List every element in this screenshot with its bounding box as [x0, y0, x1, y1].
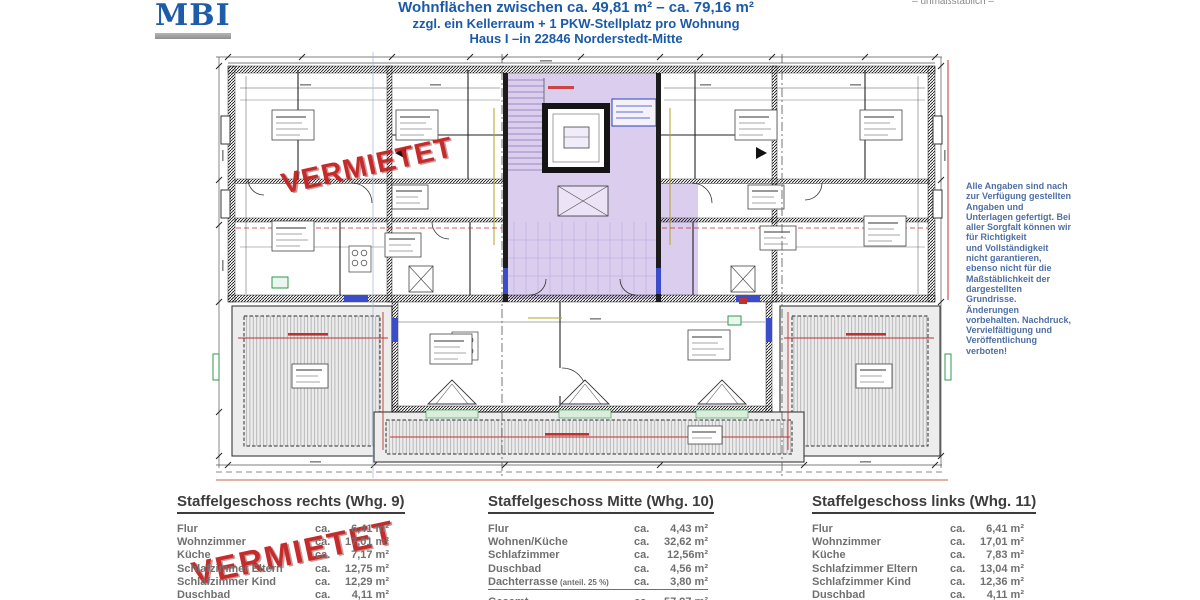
room-label: Küche: [177, 549, 315, 562]
table-row: Wohnzimmerca.17,01 m²: [812, 536, 1024, 549]
disclaimer-line: Alle Angaben sind nach: [966, 181, 1074, 191]
disclaimer-line: zur Verfügung gestellten: [966, 191, 1074, 201]
table-whg-11: Staffelgeschoss links (Whg. 11) Flurca.6…: [812, 493, 1024, 600]
room-area-value: 17,01 m²: [972, 536, 1024, 549]
room-label: Wohnzimmer: [812, 536, 950, 549]
room-area-value: 17,01 m²: [337, 536, 389, 549]
approx-prefix: ca.: [634, 536, 656, 549]
scale-note: – unmaßstäblich –: [878, 0, 1028, 7]
room-label: Schlafzimmer: [488, 549, 634, 562]
title-extras: zzgl. ein Kellerraum + 1 PKW-Stellplatz …: [326, 16, 826, 31]
room-label: Duschbad: [488, 563, 634, 576]
disclaimer-line: Maßstäblichkeit der: [966, 274, 1074, 284]
room-label: Küche: [812, 549, 950, 562]
table-row: Wohnzimmerca.17,01 m²: [177, 536, 389, 549]
mbi-logo: MBI: [155, 0, 231, 39]
table-row: Flurca.6,41 m²: [812, 523, 1024, 536]
approx-prefix: ca.: [634, 523, 656, 536]
approx-prefix: ca.: [950, 523, 972, 536]
disclaimer-line: Vervielfältigung und: [966, 325, 1074, 335]
room-label: Dachterrasse (anteil. 25 %): [488, 576, 634, 589]
title-area-range: Wohnflächen zwischen ca. 49,81 m² – ca. …: [326, 0, 826, 16]
room-area-value: 12,29 m²: [337, 576, 389, 589]
approx-prefix: ca.: [950, 589, 972, 600]
room-area-value: 12,75 m²: [337, 563, 389, 576]
table-rows-whg-10: Flurca.4,43 m²Wohnen/Kücheca.32,62 m²Sch…: [488, 523, 708, 600]
room-area-value: 12,56m²: [656, 549, 708, 562]
table-row: Schlafzimmer Elternca.12,75 m²: [177, 563, 389, 576]
approx-prefix: ca.: [315, 576, 337, 589]
table-row: Gesamtca.57,97 m²: [488, 596, 708, 600]
approx-prefix: ca.: [950, 563, 972, 576]
stove-icon-left: [349, 246, 371, 272]
approx-prefix: ca.: [315, 563, 337, 576]
plan-arrow-right: [756, 147, 767, 159]
table-row: Schlafzimmerca.12,56m²: [488, 549, 708, 562]
table-row: Duschbadca.4,11 m²: [812, 589, 1024, 600]
page-title: Wohnflächen zwischen ca. 49,81 m² – ca. …: [326, 0, 826, 46]
room-label: Flur: [812, 523, 950, 536]
room-label: Gesamt: [488, 596, 634, 600]
room-area-value: 7,83 m²: [972, 549, 1024, 562]
table-row: Flurca.6,41 m²: [177, 523, 389, 536]
room-area-value: 6,41 m²: [337, 523, 389, 536]
approx-prefix: ca.: [950, 549, 972, 562]
disclaimer-line: nicht garantieren,: [966, 253, 1074, 263]
room-area-value: 57,97 m²: [656, 596, 708, 600]
approx-prefix: ca.: [634, 549, 656, 562]
table-row: Kücheca.7,17 m²: [177, 549, 389, 562]
mbi-logo-bar: [155, 33, 231, 39]
disclaimer-line: dargestellten: [966, 284, 1074, 294]
room-label-note: (anteil. 25 %): [558, 578, 609, 587]
disclaimer-line: verboten!: [966, 346, 1074, 356]
core-info-box: [612, 99, 656, 126]
disclaimer-line: für Richtigkeit: [966, 232, 1074, 242]
approx-prefix: ca.: [315, 589, 337, 600]
mbi-logo-text: MBI: [155, 0, 231, 32]
disclaimer-line: und Vollständigkeit: [966, 243, 1074, 253]
approx-prefix: ca.: [950, 576, 972, 589]
room-label: Flur: [177, 523, 315, 536]
title-address: Haus I –in 22846 Norderstedt-Mitte: [326, 31, 826, 46]
floor-plan: [210, 50, 955, 490]
room-label: Flur: [488, 523, 634, 536]
table-row: Duschbadca.4,11 m²: [177, 589, 389, 600]
room-label: Duschbad: [812, 589, 950, 600]
table-title-whg-10: Staffelgeschoss Mitte (Whg. 10): [488, 493, 714, 514]
room-label: Schlafzimmer Kind: [177, 576, 315, 589]
approx-prefix: ca.: [315, 536, 337, 549]
core-cross-box: [558, 186, 608, 216]
room-area-value: 4,11 m²: [337, 589, 389, 600]
brochure-page: MBI Wohnflächen zwischen ca. 49,81 m² – …: [0, 0, 1200, 600]
disclaimer-line: Veröffentlichung: [966, 335, 1074, 345]
disclaimer-line: aller Sorgfalt können wir: [966, 222, 1074, 232]
table-row: Schlafzimmer Kindca.12,29 m²: [177, 576, 389, 589]
room-label: Wohnen/Küche: [488, 536, 634, 549]
room-label: Wohnzimmer: [177, 536, 315, 549]
table-whg-9: Staffelgeschoss rechts (Whg. 9) Flurca.6…: [177, 493, 389, 600]
elevator-shaft: [545, 106, 607, 170]
room-area-value: 13,04 m²: [972, 563, 1024, 576]
room-area-value: 6,41 m²: [972, 523, 1024, 536]
disclaimer-line: ebenso nicht für die: [966, 263, 1074, 273]
table-title-whg-11: Staffelgeschoss links (Whg. 11): [812, 493, 1036, 514]
disclaimer-line: Änderungen: [966, 305, 1074, 315]
disclaimer-text: Alle Angaben sind nachzur Verfügung gest…: [966, 181, 1074, 356]
room-area-value: 7,17 m²: [337, 549, 389, 562]
table-row: Schlafzimmer Elternca.13,04 m²: [812, 563, 1024, 576]
core-wall-right: [656, 73, 661, 302]
room-area-value: 4,43 m²: [656, 523, 708, 536]
dormer-windows: [426, 380, 748, 418]
room-label: Schlafzimmer Eltern: [812, 563, 950, 576]
table-row: Kücheca.7,83 m²: [812, 549, 1024, 562]
room-area-value: 4,11 m²: [972, 589, 1024, 600]
disclaimer-line: Unterlagen gefertigt. Bei: [966, 212, 1074, 222]
room-label: Schlafzimmer Eltern: [177, 563, 315, 576]
approx-prefix: ca.: [634, 563, 656, 576]
core-red-label: [548, 86, 574, 89]
table-rows-whg-11: Flurca.6,41 m²Wohnzimmerca.17,01 m²Küche…: [812, 523, 1024, 600]
approx-prefix: ca.: [634, 596, 656, 600]
table-row: Wohnen/Kücheca.32,62 m²: [488, 536, 708, 549]
table-whg-10: Staffelgeschoss Mitte (Whg. 10) Flurca.4…: [488, 493, 708, 600]
room-area-value: 12,36 m²: [972, 576, 1024, 589]
disclaimer-line: Angaben und: [966, 202, 1074, 212]
disclaimer-line: Grundrisse.: [966, 294, 1074, 304]
approx-prefix: ca.: [634, 576, 656, 589]
approx-prefix: ca.: [950, 536, 972, 549]
table-rows-whg-9: Flurca.6,41 m²Wohnzimmerca.17,01 m²Küche…: [177, 523, 389, 600]
approx-prefix: ca.: [315, 523, 337, 536]
room-label: Schlafzimmer Kind: [812, 576, 950, 589]
table-row: Dachterrasse (anteil. 25 %)ca.3,80 m²: [488, 576, 708, 590]
table-row: Flurca.4,43 m²: [488, 523, 708, 536]
table-title-whg-9: Staffelgeschoss rechts (Whg. 9): [177, 493, 405, 514]
core-wall-left: [503, 73, 508, 302]
room-area-value: 3,80 m²: [656, 576, 708, 589]
room-label: Duschbad: [177, 589, 315, 600]
room-area-value: 4,56 m²: [656, 563, 708, 576]
disclaimer-line: vorbehalten. Nachdruck,: [966, 315, 1074, 325]
table-row: Duschbadca.4,56 m²: [488, 563, 708, 576]
table-row: Schlafzimmer Kindca.12,36 m²: [812, 576, 1024, 589]
approx-prefix: ca.: [315, 549, 337, 562]
room-area-value: 32,62 m²: [656, 536, 708, 549]
